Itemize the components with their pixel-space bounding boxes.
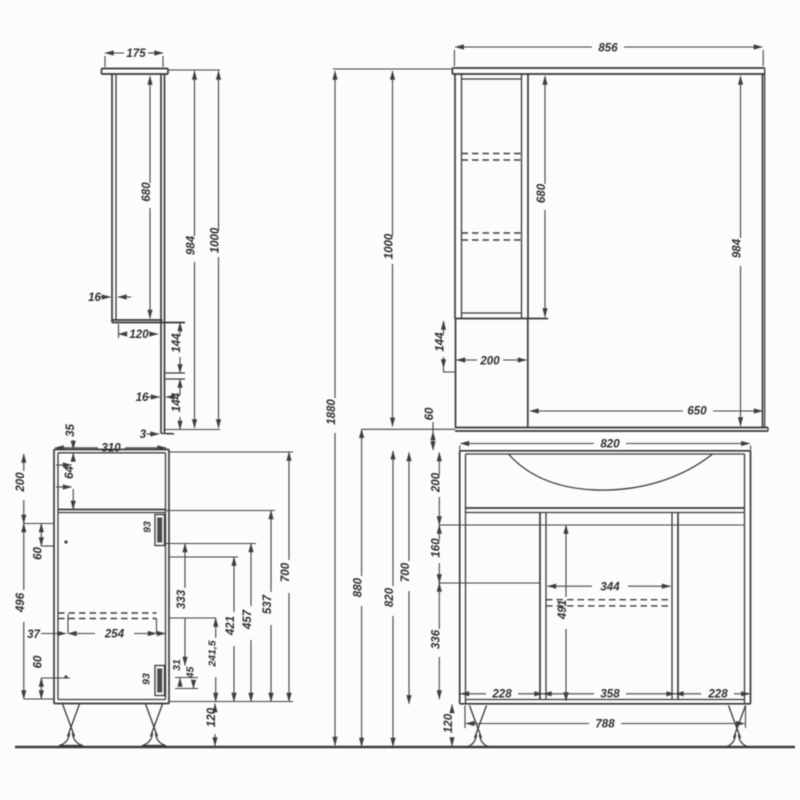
svg-text:60: 60 — [32, 547, 44, 560]
svg-text:344: 344 — [600, 582, 620, 594]
svg-text:700: 700 — [280, 562, 292, 582]
svg-text:35: 35 — [65, 424, 77, 437]
svg-text:457: 457 — [242, 609, 254, 630]
svg-text:31: 31 — [171, 659, 183, 671]
svg-text:537: 537 — [262, 594, 274, 614]
svg-text:16: 16 — [136, 392, 149, 404]
svg-text:3: 3 — [140, 429, 147, 441]
svg-text:820: 820 — [600, 439, 620, 451]
svg-text:200: 200 — [479, 356, 500, 368]
svg-text:336: 336 — [430, 629, 442, 649]
svg-text:144: 144 — [171, 333, 183, 353]
svg-text:333: 333 — [176, 589, 188, 609]
svg-text:120: 120 — [129, 329, 149, 341]
svg-text:880: 880 — [353, 577, 365, 597]
svg-text:120: 120 — [206, 707, 218, 727]
svg-text:228: 228 — [491, 689, 512, 701]
svg-text:1000: 1000 — [384, 233, 396, 259]
svg-text:60: 60 — [32, 655, 44, 668]
svg-text:37: 37 — [27, 629, 40, 641]
svg-text:254: 254 — [104, 629, 125, 641]
svg-text:120: 120 — [443, 713, 455, 733]
svg-text:984: 984 — [732, 238, 744, 258]
svg-text:60: 60 — [424, 407, 436, 420]
svg-text:200: 200 — [15, 472, 27, 493]
svg-text:1880: 1880 — [326, 399, 338, 425]
svg-text:1000: 1000 — [210, 227, 222, 253]
svg-text:228: 228 — [707, 689, 728, 701]
svg-text:93: 93 — [142, 521, 154, 533]
svg-text:491: 491 — [557, 600, 569, 620]
svg-text:856: 856 — [598, 43, 618, 55]
svg-text:45: 45 — [185, 667, 197, 680]
svg-text:160: 160 — [430, 538, 442, 558]
svg-text:200: 200 — [430, 472, 442, 493]
svg-text:93: 93 — [141, 673, 153, 685]
svg-text:358: 358 — [600, 689, 620, 701]
svg-text:700: 700 — [400, 562, 412, 582]
svg-text:680: 680 — [141, 182, 153, 202]
svg-text:421: 421 — [225, 616, 237, 636]
svg-text:241,5: 241,5 — [207, 640, 219, 667]
svg-text:984: 984 — [186, 235, 198, 255]
svg-text:788: 788 — [595, 719, 615, 731]
svg-text:310: 310 — [101, 443, 121, 455]
svg-text:820: 820 — [384, 587, 396, 607]
svg-text:650: 650 — [687, 406, 707, 418]
svg-text:144: 144 — [171, 392, 183, 412]
svg-text:16: 16 — [88, 292, 101, 304]
svg-text:144: 144 — [435, 332, 447, 352]
svg-text:496: 496 — [15, 592, 27, 613]
svg-text:64: 64 — [64, 466, 76, 479]
svg-text:175: 175 — [126, 48, 146, 60]
svg-text:680: 680 — [536, 183, 548, 203]
